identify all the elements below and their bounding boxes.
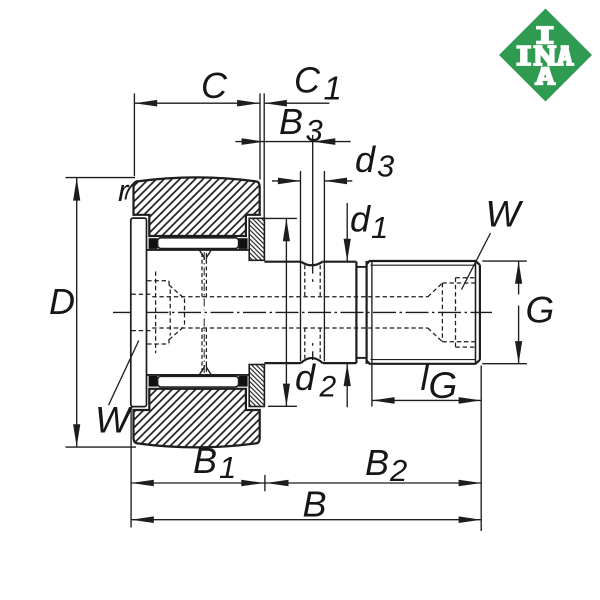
svg-text:W: W <box>486 194 524 235</box>
svg-text:C: C <box>294 60 321 101</box>
svg-text:1: 1 <box>371 210 388 245</box>
svg-text:C: C <box>201 65 228 106</box>
svg-text:B: B <box>193 440 217 481</box>
svg-text:B: B <box>365 442 389 483</box>
svg-text:B: B <box>303 484 327 525</box>
svg-text:D: D <box>49 281 75 322</box>
svg-text:1: 1 <box>219 450 236 485</box>
svg-text:d: d <box>350 199 371 240</box>
svg-text:2: 2 <box>389 453 407 488</box>
svg-text:B: B <box>279 101 303 142</box>
svg-text:3: 3 <box>377 149 394 184</box>
svg-text:r: r <box>118 173 130 208</box>
svg-text:W: W <box>95 400 133 441</box>
svg-text:2: 2 <box>319 371 337 404</box>
svg-text:G: G <box>429 365 458 406</box>
svg-text:d: d <box>355 139 376 180</box>
svg-text:1: 1 <box>324 70 342 107</box>
svg-text:G: G <box>526 290 555 331</box>
svg-text:d: d <box>295 357 316 398</box>
svg-text:3: 3 <box>306 113 323 148</box>
